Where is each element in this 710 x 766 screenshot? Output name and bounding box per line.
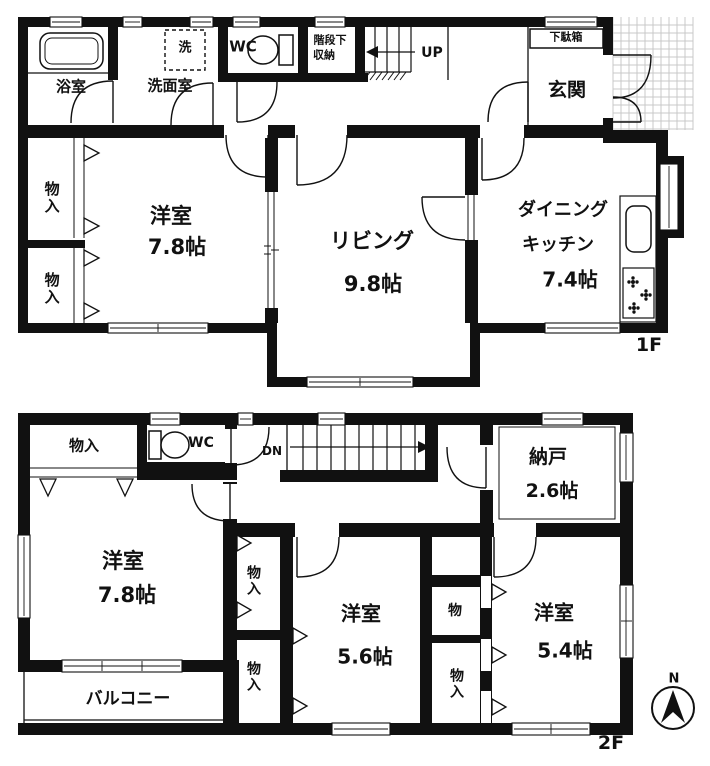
label-dk-size: 7.4帖 — [542, 269, 597, 292]
label-living-size: 9.8帖 — [344, 272, 402, 296]
label-storeroom-size: 2.6帖 — [526, 481, 579, 503]
storeroom-lining — [499, 427, 615, 519]
label-western-2f-c-name: 洋室 — [534, 602, 574, 625]
label-western-1f-name: 洋室 — [150, 204, 192, 228]
stairs-1f — [363, 27, 415, 80]
label-entrance: 玄関 — [548, 80, 586, 102]
stairs-up-arrow — [366, 46, 378, 58]
label-shoe-cabinet: 下駄箱 — [550, 32, 583, 45]
label-western-2f-b-size: 5.6帖 — [337, 646, 392, 669]
label-stairs-down: DN — [262, 445, 282, 459]
label-wc-1f: WC — [229, 38, 257, 55]
label-balcony: バルコニー — [86, 690, 171, 710]
porch-tile-grid — [613, 17, 693, 130]
label-living-name: リビング — [330, 229, 414, 253]
label-under-stairs-2: 収納 — [313, 50, 335, 63]
label-closet-right-upper: 物 — [448, 603, 462, 619]
label-compass-n: N — [669, 673, 680, 688]
label-closet-mid-upper: 物入 — [245, 565, 261, 597]
floor-plan-page: 浴室 洗 洗面室 WC 階段下 収納 UP 下駄箱 玄関 物入 物入 洋室 7.… — [0, 0, 710, 766]
compass-icon — [652, 687, 694, 729]
label-closet-mid-lower: 物入 — [245, 661, 261, 693]
label-closet-1f-upper: 物入 — [42, 181, 59, 215]
label-dk-name-1: ダイニング — [518, 201, 608, 222]
toilet-icon-2f — [149, 431, 189, 459]
label-wc-2f: WC — [188, 435, 214, 451]
label-western-2f-a-size: 7.8帖 — [98, 583, 156, 607]
label-bathroom: 浴室 — [56, 78, 86, 95]
label-western-2f-b-name: 洋室 — [341, 603, 381, 626]
door-arcs-1f — [71, 81, 528, 240]
label-storeroom-name: 納戸 — [529, 447, 567, 469]
label-western-2f-c-size: 5.4帖 — [537, 640, 592, 663]
label-western-2f-a-name: 洋室 — [102, 549, 144, 573]
label-closet-1f-lower: 物入 — [42, 272, 59, 306]
label-closet-2f-topleft: 物入 — [69, 437, 99, 454]
stairs-2f — [287, 425, 430, 470]
label-stairs-up: UP — [421, 45, 443, 61]
label-closet-right-lower: 物入 — [448, 668, 464, 700]
stove-icon — [623, 268, 654, 318]
kitchen-sink-icon — [626, 206, 651, 252]
label-western-1f-size: 7.8帖 — [148, 235, 206, 259]
label-washing-machine: 洗 — [178, 42, 191, 57]
label-floor-2f: 2F — [598, 733, 624, 755]
bathtub-icon — [28, 33, 108, 73]
label-under-stairs-1: 階段下 — [314, 35, 347, 48]
label-floor-1f: 1F — [636, 335, 662, 357]
kitchen-counter — [620, 196, 656, 322]
label-dk-name-2: キッチン — [522, 236, 594, 257]
label-washroom: 洗面室 — [147, 77, 192, 94]
